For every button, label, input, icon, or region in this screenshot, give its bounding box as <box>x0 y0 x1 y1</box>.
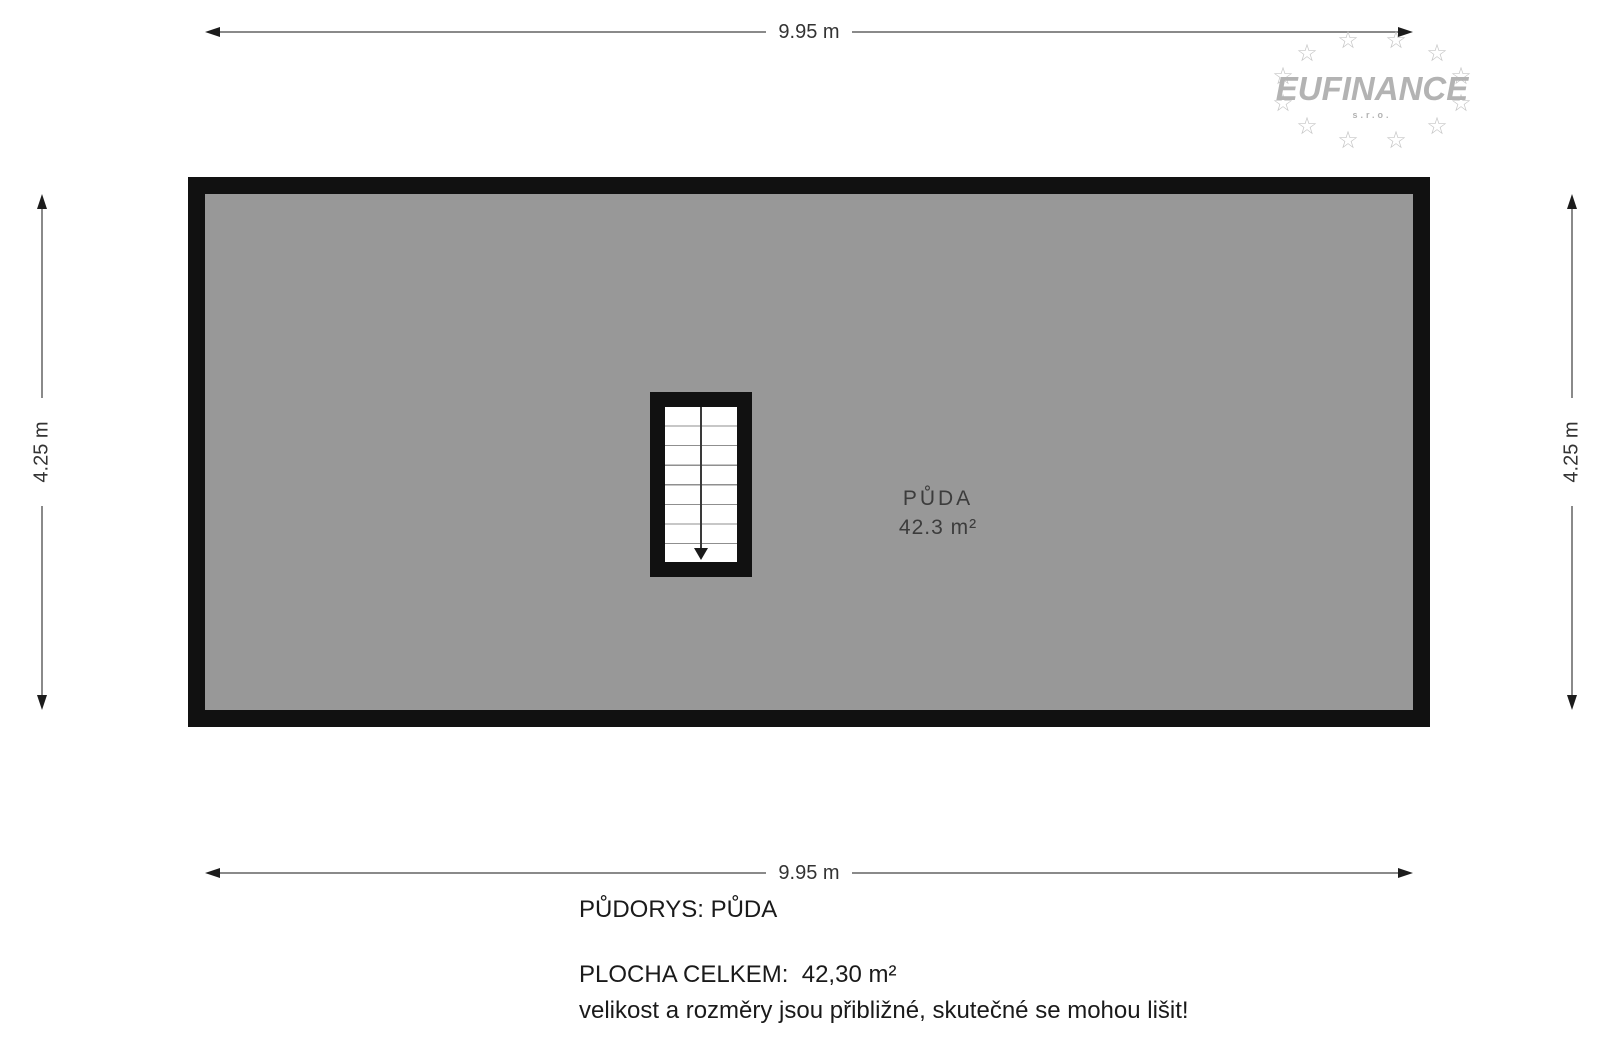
dimension-label-box: 4.25 m <box>1560 404 1584 500</box>
staircase <box>650 392 752 577</box>
arrow-down-icon <box>37 695 47 710</box>
star-icon: ☆ <box>1426 42 1448 66</box>
dimension-line <box>1571 209 1573 398</box>
logo-suffix: s.r.o. <box>1252 110 1492 120</box>
dimension-label-right: 4.25 m <box>1561 421 1584 482</box>
stairs-direction-line <box>700 407 702 551</box>
stair-treads <box>665 407 737 562</box>
company-logo: ☆ ☆ ☆ ☆ ☆ ☆ ☆ ☆ ☆ ☆ ☆ ☆ EUFINANCE s.r.o. <box>1252 26 1492 160</box>
star-icon: ☆ <box>1296 42 1318 66</box>
dimension-left: 4.25 m <box>30 194 54 710</box>
star-icon: ☆ <box>1337 29 1359 53</box>
room-label: PŮDA 42.3 m² <box>818 487 1058 540</box>
dimension-label-top: 9.95 m <box>778 21 839 44</box>
dimension-line <box>41 209 43 398</box>
arrow-up-icon <box>37 194 47 209</box>
dimension-label-left: 4.25 m <box>31 421 54 482</box>
floor-plan-canvas: 9.95 m ☆ ☆ ☆ ☆ ☆ ☆ ☆ ☆ ☆ ☆ ☆ ☆ EUFINANCE… <box>0 0 1600 1042</box>
logo-text: EUFINANCE <box>1252 70 1492 108</box>
arrow-right-icon <box>1398 868 1413 878</box>
plan-footer: PŮDORYS: PŮDA PLOCHA CELKEM: 42,30 m² ve… <box>579 896 1189 1025</box>
dimension-line <box>1571 506 1573 695</box>
disclaimer: velikost a rozměry jsou přibližné, skute… <box>579 997 1189 1025</box>
star-icon: ☆ <box>1337 129 1359 153</box>
room-puda <box>188 177 1430 727</box>
dimension-line <box>220 31 766 33</box>
dimension-line <box>41 506 43 695</box>
dimension-label-box: 4.25 m <box>30 404 54 500</box>
room-name: PŮDA <box>818 487 1058 511</box>
arrow-left-icon <box>205 868 220 878</box>
dimension-right: 4.25 m <box>1560 194 1584 710</box>
star-icon: ☆ <box>1385 29 1407 53</box>
dimension-top: 9.95 m <box>205 21 1413 43</box>
star-icon: ☆ <box>1385 129 1407 153</box>
dimension-line <box>220 872 766 874</box>
plan-title: PŮDORYS: PŮDA <box>579 896 1189 924</box>
dimension-bottom: 9.95 m <box>205 862 1413 884</box>
room-area: 42.3 m² <box>818 516 1058 540</box>
total-area: PLOCHA CELKEM: 42,30 m² <box>579 961 1189 989</box>
dimension-label-bottom: 9.95 m <box>778 862 839 885</box>
stairs-direction-arrow-icon <box>694 548 708 560</box>
arrow-up-icon <box>1567 194 1577 209</box>
arrow-left-icon <box>205 27 220 37</box>
arrow-down-icon <box>1567 695 1577 710</box>
dimension-line <box>852 872 1398 874</box>
